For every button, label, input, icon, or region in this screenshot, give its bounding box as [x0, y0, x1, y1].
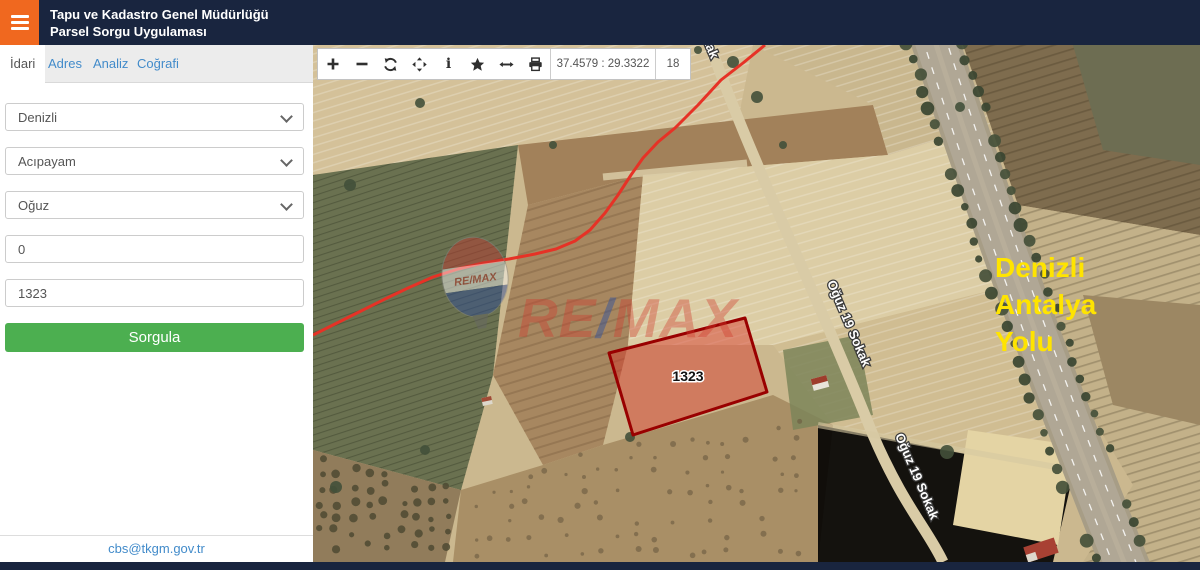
map-toolbar: i 37.4579 : 29: [317, 48, 691, 80]
zoom-out-button[interactable]: [347, 49, 376, 79]
star-icon: [470, 57, 485, 72]
province-select[interactable]: Denizli: [5, 103, 304, 131]
plus-icon: [326, 57, 340, 71]
move-arrows-icon: [412, 57, 427, 72]
bottom-status-bar: [0, 562, 1200, 570]
zoom-level-display: 18: [655, 49, 690, 79]
hamburger-menu-button[interactable]: [0, 0, 39, 45]
info-icon: i: [446, 57, 451, 71]
printer-icon: [528, 57, 543, 72]
coordinates-display: 37.4579 : 29.3322: [550, 49, 655, 79]
chevron-down-icon: [280, 198, 293, 211]
remax-text-watermark: RE/MAX: [518, 287, 740, 349]
info-button[interactable]: i: [434, 49, 463, 79]
measure-button[interactable]: [492, 49, 521, 79]
app-title-line1: Tapu ve Kadastro Genel Müdürlüğü: [50, 6, 269, 23]
block-input[interactable]: [5, 235, 304, 263]
district-select-value: Acıpayam: [18, 154, 76, 169]
chevron-down-icon: [280, 110, 293, 123]
map-canvas[interactable]: 1323 RE/MAX RE/MAX Oğuz 19 Sokak Oğuz 19: [313, 45, 1200, 562]
parcel-query-app: Tapu ve Kadastro Genel Müdürlüğü Parsel …: [0, 0, 1200, 570]
parcel-input[interactable]: [5, 279, 304, 307]
sidebar-footer: cbs@tkgm.gov.tr: [0, 535, 313, 562]
district-select[interactable]: Acıpayam: [5, 147, 304, 175]
query-form: Denizli Acıpayam Oğuz Sorgula: [0, 83, 313, 352]
hamburger-icon: [11, 15, 29, 18]
print-button[interactable]: [521, 49, 550, 79]
minus-icon: [355, 57, 369, 71]
contact-email-link[interactable]: cbs@tkgm.gov.tr: [108, 541, 205, 556]
app-header: Tapu ve Kadastro Genel Müdürlüğü Parsel …: [0, 0, 1200, 45]
province-select-value: Denizli: [18, 110, 57, 125]
app-title: Tapu ve Kadastro Genel Müdürlüğü Parsel …: [50, 6, 269, 40]
chevron-down-icon: [280, 154, 293, 167]
refresh-button[interactable]: [376, 49, 405, 79]
sidebar: Denizli Acıpayam Oğuz Sorgula cbs@tkgm.g…: [0, 83, 313, 562]
zoom-in-button[interactable]: [318, 49, 347, 79]
sidebar-tabbar: İdari Adres Analiz Coğrafi: [0, 45, 313, 83]
tab-cografi[interactable]: Coğrafi: [127, 45, 189, 83]
query-button[interactable]: Sorgula: [5, 323, 304, 352]
neighborhood-select-value: Oğuz: [18, 198, 49, 213]
favorites-button[interactable]: [463, 49, 492, 79]
arrows-horizontal-icon: [499, 57, 514, 72]
pan-button[interactable]: [405, 49, 434, 79]
app-title-line2: Parsel Sorgu Uygulaması: [50, 23, 269, 40]
parcel-number-label: 1323: [672, 368, 703, 384]
neighborhood-select[interactable]: Oğuz: [5, 191, 304, 219]
refresh-icon: [383, 57, 398, 72]
